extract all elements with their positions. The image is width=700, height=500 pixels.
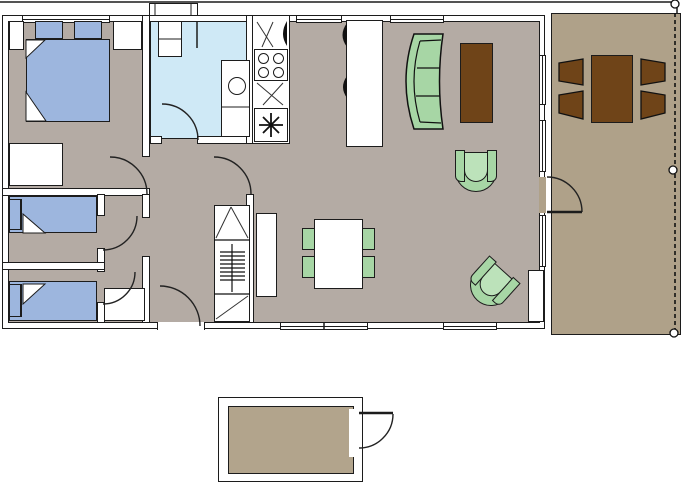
window-bottom-bedroom — [280, 322, 368, 330]
armchair-seat — [464, 152, 488, 182]
wall-bathroom-bottom-right — [197, 136, 253, 144]
deck-door-opening — [539, 177, 546, 213]
pillow — [9, 284, 22, 317]
deck-table — [591, 55, 633, 123]
utility-cabinet — [214, 205, 250, 322]
wash-basin — [228, 77, 246, 95]
pillow — [74, 21, 102, 39]
pillow — [9, 199, 22, 230]
window-right-upper — [539, 55, 546, 105]
dining-chair — [302, 228, 315, 250]
double-bed — [26, 39, 110, 122]
single-bed-3 — [9, 281, 97, 321]
stove-burner — [258, 67, 269, 78]
railing-post — [671, 0, 679, 8]
wall-bedroom2-right-a — [97, 194, 105, 216]
basin-cabinet — [221, 60, 250, 137]
window-bottom-living — [443, 322, 497, 330]
dresser — [9, 143, 63, 186]
media-table — [460, 43, 493, 123]
wall-bathroom-bottom-left — [150, 136, 162, 144]
wall-master-bottom — [2, 188, 150, 196]
armchair-arm — [487, 150, 497, 182]
shed-door-notch — [349, 409, 359, 457]
bathroom-window-bay — [149, 3, 198, 16]
window-right-lower — [539, 215, 546, 267]
window-right-middle — [539, 120, 546, 172]
pillow — [35, 21, 63, 39]
eave-line — [0, 2, 677, 13]
dining-chair — [302, 256, 315, 278]
shed-floor — [228, 406, 354, 474]
door-arc-shed — [359, 414, 393, 448]
sideboard — [256, 213, 277, 297]
kitchen-island — [346, 20, 383, 147]
wall-bedroom-divider — [2, 262, 105, 270]
stove-burner — [273, 67, 284, 78]
window-living-top — [390, 15, 444, 23]
dining-chair — [362, 228, 375, 250]
front-door-opening — [157, 322, 205, 330]
shower-unit — [158, 21, 182, 57]
stove-burner — [273, 53, 284, 64]
wall-hall-stub-upper — [142, 194, 150, 218]
window-kitchen-top — [296, 15, 342, 23]
single-bed-2 — [9, 196, 97, 233]
dining-chair — [362, 256, 375, 278]
wardrobe — [104, 288, 145, 321]
kitchen-appliance-box — [254, 108, 288, 142]
dining-table — [314, 219, 363, 289]
floor-plan — [0, 0, 700, 500]
nightstand-left — [9, 21, 24, 50]
stove-burner — [258, 53, 269, 64]
armchair — [455, 150, 497, 192]
nightstand-right — [113, 21, 142, 50]
corner-cabinet — [528, 270, 544, 322]
wall-master-right — [142, 15, 150, 157]
